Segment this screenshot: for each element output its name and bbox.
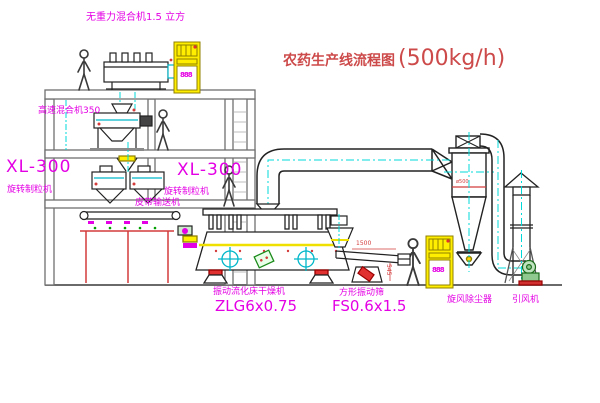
label-granulator-right-name: 旋转制粒机 xyxy=(164,188,209,197)
duct-centerline xyxy=(268,160,455,210)
fan-base xyxy=(519,281,542,285)
cabinet-indicator-light xyxy=(193,45,196,48)
gravity-free-mixer xyxy=(104,53,180,90)
title-capacity: (500kg/h) xyxy=(398,46,505,71)
cabinet1-display: 888 xyxy=(180,72,192,79)
label-high-speed-mixer: 高速混合机350 xyxy=(38,107,100,116)
cabinet2-display: 888 xyxy=(432,267,444,274)
label-granulator-right-model: XL-300 xyxy=(177,162,242,179)
dim-cyclone-diameter: ø500 xyxy=(456,180,469,185)
control-cabinet-2 xyxy=(426,236,453,288)
label-fan: 引风机 xyxy=(512,296,539,305)
conveyor-motor xyxy=(182,228,188,234)
label-cyclone: 旋风除尘器 xyxy=(447,296,492,305)
fluid-bed-dryer xyxy=(183,204,349,283)
dim-screen-height: 545 xyxy=(385,264,391,275)
label-granulator-left-name: 旋转制粒机 xyxy=(7,186,52,195)
flow-diagram-canvas: 农药生产线流程图 (500kg/h) 无重力混合机1.5 立方 高速混合机350… xyxy=(0,0,600,403)
label-screen-model: FS0.6x1.5 xyxy=(332,299,406,314)
dryer-foot-left xyxy=(204,270,227,283)
dim-screen-length: 1500 xyxy=(356,241,371,247)
control-cabinet-1 xyxy=(174,42,200,93)
conveyor-stand xyxy=(80,231,174,283)
worker-figure-floor2 xyxy=(157,110,169,150)
title-text: 农药生产线流程图 xyxy=(283,50,395,70)
conveyor-stand-dots xyxy=(94,227,157,230)
label-granulator-left-model: XL-300 xyxy=(6,159,71,176)
label-belt-conveyor: 皮带输送机 xyxy=(135,199,180,208)
cyclone-outlet-pipe xyxy=(480,134,526,275)
worker-figure-roof xyxy=(78,50,90,90)
diagram-title: 农药生产线流程图 (500kg/h) xyxy=(283,46,505,71)
label-dryer-model: ZLG6x0.75 xyxy=(215,299,297,314)
cabinet2-indicator-light xyxy=(446,239,449,242)
label-dryer-name: 振动流化床干燥机 xyxy=(213,288,285,297)
dryer-foot-right xyxy=(310,270,333,283)
label-gravity-free-mixer: 无重力混合机1.5 立方 xyxy=(86,13,185,23)
outlet-pipe-centerline xyxy=(498,140,530,268)
exhaust-duct xyxy=(257,149,452,204)
